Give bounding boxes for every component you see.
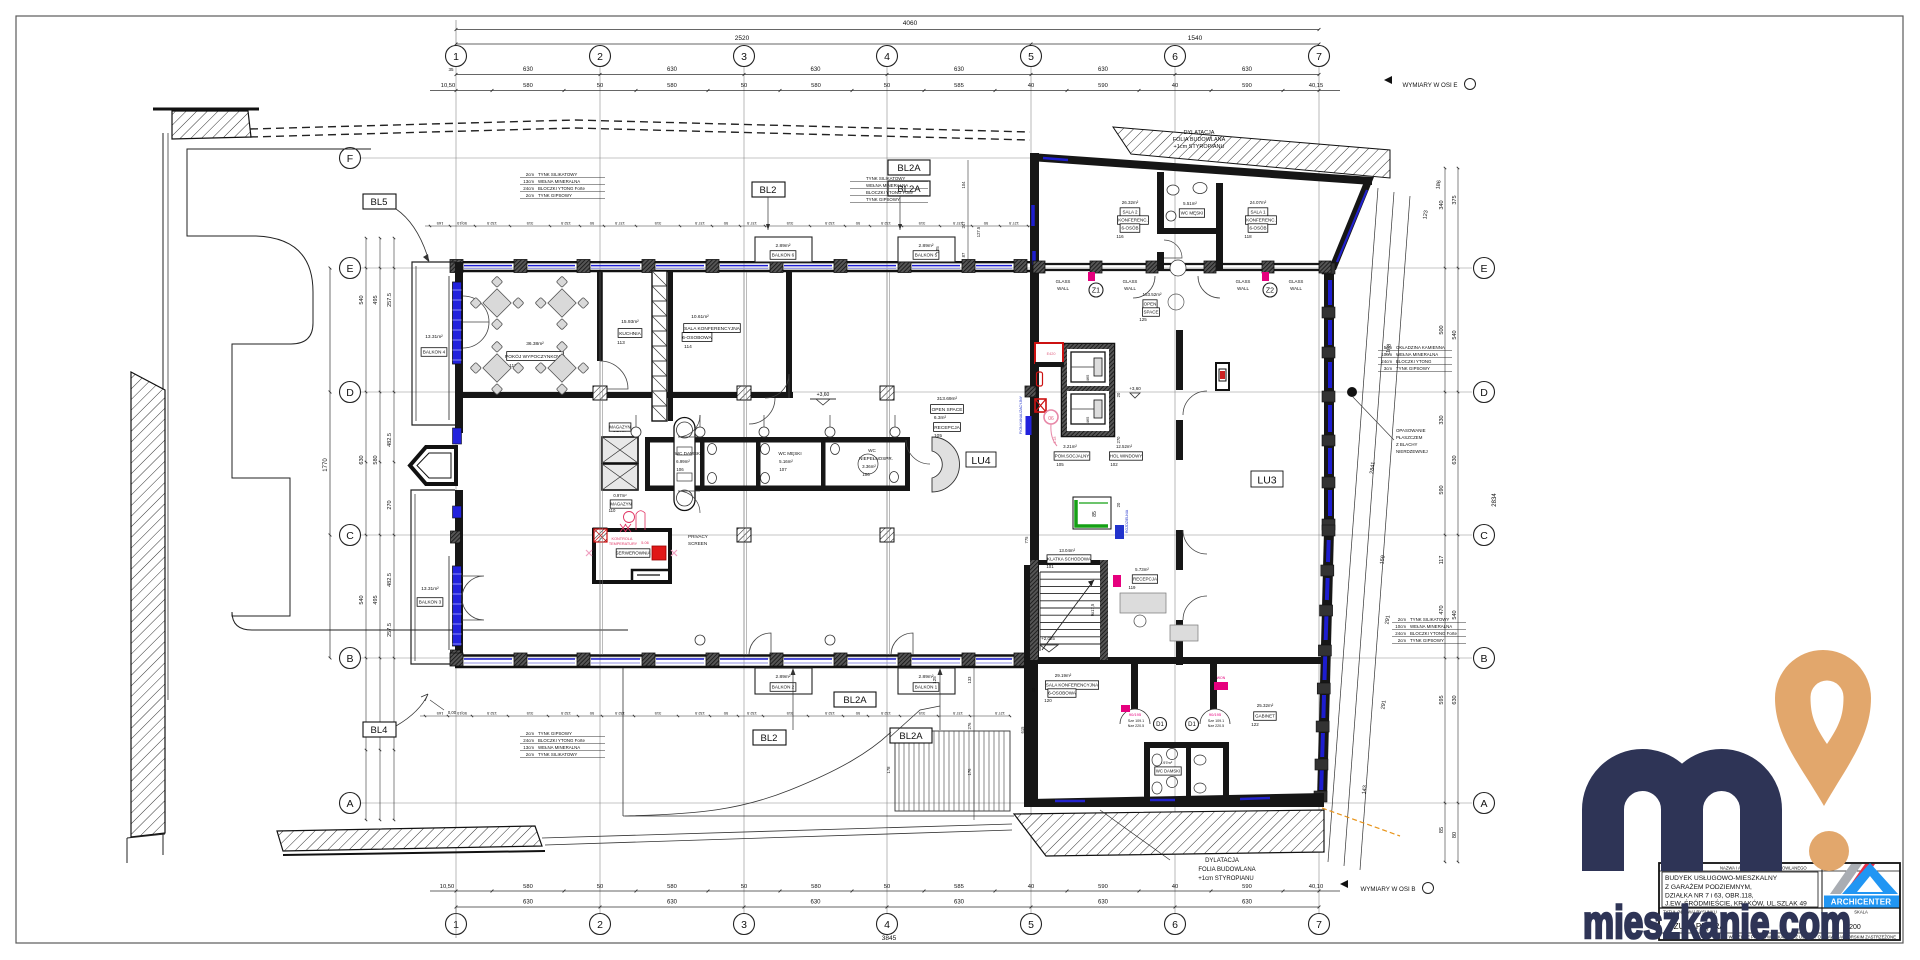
svg-text:2.89m²: 2.89m²	[776, 674, 791, 680]
svg-text:85: 85	[1439, 827, 1445, 833]
svg-text:495: 495	[373, 595, 379, 604]
svg-text:85: 85	[1092, 511, 1098, 517]
svg-text:+1cm STYROPIANU: +1cm STYROPIANU	[1198, 876, 1254, 882]
svg-text:WEŁNA MINERALNA: WEŁNA MINERALNA	[866, 183, 908, 188]
svg-text:470: 470	[1439, 605, 1445, 614]
svg-text:110: 110	[609, 508, 616, 513]
svg-text:KONTROLA: KONTROLA	[612, 537, 633, 541]
svg-text:132.5: 132.5	[560, 711, 571, 716]
svg-text:Z GARAŻEM PODZIEMNYM,: Z GARAŻEM PODZIEMNYM,	[1665, 882, 1752, 891]
svg-text:24cm: 24cm	[1395, 631, 1406, 636]
svg-text:5: 5	[1028, 51, 1034, 63]
svg-text:RECEPCJA: RECEPCJA	[1133, 577, 1157, 582]
svg-text:BALKON 4: BALKON 4	[423, 350, 446, 355]
svg-text:630: 630	[954, 67, 965, 73]
svg-text:125: 125	[1139, 317, 1147, 322]
svg-text:D: D	[346, 387, 354, 399]
svg-text:E420: E420	[1047, 352, 1056, 356]
svg-text:10,50: 10,50	[440, 884, 455, 890]
svg-text:40,15: 40,15	[1309, 83, 1324, 89]
svg-text:0.97m²: 0.97m²	[613, 493, 627, 498]
svg-text:BL2: BL2	[760, 185, 777, 196]
svg-text:630: 630	[523, 67, 534, 73]
svg-text:40: 40	[1031, 687, 1036, 692]
svg-text:117: 117	[1439, 556, 1445, 565]
svg-text:Nze 220.5: Nze 220.5	[1128, 724, 1144, 728]
svg-text:50: 50	[884, 884, 890, 890]
svg-text:WALL: WALL	[1124, 286, 1136, 291]
svg-text:TYNK SILIKATOWY: TYNK SILIKATOWY	[1410, 617, 1449, 622]
svg-text:132.5: 132.5	[824, 221, 835, 226]
svg-text:7: 7	[1316, 51, 1322, 63]
svg-text:50|10: 50|10	[456, 711, 467, 716]
svg-text:630: 630	[667, 900, 678, 906]
svg-text:+3,60: +3,60	[1129, 386, 1141, 391]
svg-text:590: 590	[1242, 83, 1252, 89]
svg-text:3: 3	[741, 51, 747, 63]
svg-text:mieszkanie.com: mieszkanie.com	[1583, 896, 1851, 948]
svg-text:ROZDZIELNIA: ROZDZIELNIA	[1125, 509, 1129, 533]
svg-text:2cm: 2cm	[526, 172, 535, 177]
svg-text:125: 125	[932, 676, 937, 684]
svg-text:585: 585	[954, 884, 964, 890]
svg-text:132.5: 132.5	[486, 221, 497, 226]
svg-text:6-OSOBOWA: 6-OSOBOWA	[1048, 691, 1076, 696]
svg-text:132.5: 132.5	[694, 711, 705, 716]
svg-text:13.31m²: 13.31m²	[425, 334, 443, 340]
svg-text:132.5: 132.5	[560, 221, 571, 226]
svg-text:WEŁNA MINERALNA: WEŁNA MINERALNA	[538, 745, 580, 750]
svg-text:313.69m²: 313.69m²	[937, 396, 958, 402]
svg-text:D: D	[1480, 387, 1488, 399]
svg-text:WC DAMSKI: WC DAMSKI	[1156, 769, 1180, 774]
svg-text:630: 630	[1242, 67, 1253, 73]
svg-text:615: 615	[1020, 726, 1025, 734]
svg-text:06: 06	[1048, 416, 1054, 422]
svg-text:POM.SOCJALNY: POM.SOCJALNY	[1055, 454, 1089, 459]
svg-text:Z1: Z1	[1092, 288, 1100, 295]
svg-text:2: 2	[597, 919, 603, 931]
svg-text:127.5: 127.5	[994, 711, 1005, 716]
svg-text:+2,025: +2,025	[1041, 636, 1055, 641]
svg-text:WYMIARY W OSI E: WYMIARY W OSI E	[1402, 82, 1457, 89]
svg-text:TYNK SILIKATOWY: TYNK SILIKATOWY	[866, 176, 905, 181]
svg-text:90/195: 90/195	[1209, 712, 1222, 717]
svg-text:4060: 4060	[903, 20, 918, 27]
svg-text:119: 119	[1129, 585, 1137, 590]
svg-text:5.16m²: 5.16m²	[779, 459, 793, 464]
svg-text:+3,60: +3,60	[817, 392, 830, 398]
svg-text:465: 465	[1085, 374, 1090, 381]
svg-text:4: 4	[884, 919, 890, 931]
svg-text:4: 4	[884, 51, 890, 63]
svg-text:13cm: 13cm	[523, 745, 534, 750]
svg-text:590: 590	[1242, 884, 1252, 890]
svg-text:LU3: LU3	[1257, 475, 1276, 487]
svg-text:Z BLACHY: Z BLACHY	[1396, 442, 1418, 447]
svg-text:WALL: WALL	[1057, 286, 1069, 291]
svg-text:102: 102	[1110, 462, 1118, 467]
svg-text:122: 122	[1251, 722, 1259, 727]
svg-text:340: 340	[1439, 200, 1445, 209]
svg-text:RECEPCJA: RECEPCJA	[934, 425, 960, 431]
svg-text:BL5: BL5	[371, 197, 388, 208]
svg-text:Sze 109.1: Sze 109.1	[1128, 719, 1144, 723]
svg-text:775: 775	[1024, 536, 1029, 544]
svg-text:25.32m²: 25.32m²	[1257, 703, 1274, 708]
svg-text:630: 630	[954, 900, 965, 906]
svg-text:106: 106	[676, 467, 684, 472]
svg-text:50: 50	[855, 221, 860, 226]
svg-text:630: 630	[1242, 900, 1253, 906]
svg-text:OKŁADZINA KAMIENNA: OKŁADZINA KAMIENNA	[1396, 345, 1445, 350]
svg-text:50|10: 50|10	[456, 221, 467, 226]
svg-text:Z2: Z2	[1266, 288, 1274, 295]
svg-text:165: 165	[436, 221, 443, 226]
svg-text:6.99m²: 6.99m²	[676, 459, 690, 464]
svg-text:500: 500	[1439, 325, 1445, 334]
svg-text:540: 540	[1452, 330, 1458, 339]
svg-text:630: 630	[1098, 67, 1109, 73]
svg-text:50: 50	[597, 83, 603, 89]
svg-text:2cm: 2cm	[526, 731, 535, 736]
svg-text:E: E	[1480, 263, 1487, 275]
svg-text:114: 114	[684, 344, 692, 350]
svg-text:178: 178	[886, 766, 891, 774]
svg-text:50: 50	[855, 711, 860, 716]
svg-text:24.07m²: 24.07m²	[1250, 200, 1267, 205]
svg-text:BL2A: BL2A	[843, 695, 867, 706]
svg-text:B: B	[1480, 653, 1487, 665]
svg-text:40: 40	[1172, 884, 1178, 890]
svg-text:12.52m²: 12.52m²	[1116, 444, 1133, 449]
svg-text:143: 143	[1361, 785, 1368, 795]
svg-text:330: 330	[1439, 415, 1445, 424]
svg-text:BL2A: BL2A	[897, 163, 921, 174]
svg-text:GLASS: GLASS	[1236, 279, 1251, 284]
svg-text:6-OSÓB: 6-OSÓB	[1249, 225, 1266, 231]
svg-text:20: 20	[1116, 502, 1121, 507]
svg-text:A: A	[1480, 798, 1487, 810]
svg-text:BALKON 6: BALKON 6	[772, 253, 795, 258]
svg-text:KONFERENC.: KONFERENC.	[1246, 218, 1276, 223]
svg-text:590: 590	[1439, 485, 1445, 494]
svg-text:2cm: 2cm	[1398, 617, 1407, 622]
svg-text:C: C	[1480, 530, 1488, 542]
svg-text:BALKON 1: BALKON 1	[915, 685, 938, 690]
svg-text:BALKON 3: BALKON 3	[419, 600, 442, 605]
svg-text:50: 50	[884, 83, 890, 89]
svg-text:10.61m²: 10.61m²	[691, 314, 709, 320]
svg-text:D1: D1	[1188, 722, 1196, 728]
svg-text:13cm: 13cm	[523, 179, 534, 184]
svg-text:FOLIA BUDOWLANA: FOLIA BUDOWLANA	[1198, 867, 1255, 873]
svg-text:1: 1	[453, 51, 459, 63]
svg-text:3845: 3845	[882, 935, 897, 942]
svg-text:2.89m²: 2.89m²	[919, 243, 934, 249]
svg-text:630: 630	[359, 455, 365, 464]
svg-text:176: 176	[967, 768, 972, 776]
svg-text:5.73m²: 5.73m²	[1135, 567, 1149, 572]
svg-text:40: 40	[1028, 83, 1034, 89]
svg-text:TYNK GIPSOWY: TYNK GIPSOWY	[538, 193, 572, 198]
svg-text:1540: 1540	[1188, 35, 1203, 42]
svg-text:580: 580	[523, 884, 533, 890]
svg-text:137.5: 137.5	[746, 221, 757, 226]
svg-text:6.3m²: 6.3m²	[934, 415, 947, 421]
svg-text:132.5: 132.5	[746, 711, 757, 716]
svg-text:2cm: 2cm	[526, 193, 535, 198]
svg-text:123: 123	[1422, 210, 1429, 220]
svg-text:50: 50	[723, 711, 728, 716]
svg-text:PION KANALIZACYJNY: PION KANALIZACYJNY	[1019, 395, 1023, 434]
svg-text:50: 50	[589, 221, 594, 226]
svg-text:580: 580	[811, 884, 821, 890]
svg-text:WEŁNA MINERALNA: WEŁNA MINERALNA	[1396, 352, 1438, 357]
svg-text:SALA 1: SALA 1	[1250, 210, 1266, 215]
svg-text:BL4: BL4	[371, 725, 388, 736]
svg-text:24cm: 24cm	[1381, 359, 1392, 364]
svg-text:24cm: 24cm	[523, 186, 534, 191]
svg-text:WYMIARY W OSI B: WYMIARY W OSI B	[1360, 886, 1415, 893]
svg-text:159: 159	[1379, 555, 1386, 565]
svg-text:465: 465	[1085, 416, 1090, 423]
svg-text:WEŁNA MINERALNA: WEŁNA MINERALNA	[1410, 624, 1452, 629]
svg-text:10cm: 10cm	[1381, 352, 1392, 357]
svg-text:F: F	[347, 153, 353, 165]
svg-text:315: 315	[918, 221, 925, 226]
svg-text:OPEN: OPEN	[1144, 302, 1157, 307]
svg-text:TYNK GIPSOWY: TYNK GIPSOWY	[1396, 366, 1430, 371]
svg-text:87: 87	[961, 252, 966, 257]
svg-text:TYNK SILIKATOWY: TYNK SILIKATOWY	[538, 752, 577, 757]
svg-text:BLOCZKI YTONG Forte: BLOCZKI YTONG Forte	[866, 190, 913, 195]
svg-text:6: 6	[1172, 51, 1178, 63]
svg-text:SERWEROWNIA: SERWEROWNIA	[616, 551, 651, 556]
svg-text:26.32m²: 26.32m²	[1122, 200, 1139, 205]
svg-text:WALL: WALL	[1290, 286, 1302, 291]
svg-text:40: 40	[1172, 83, 1178, 89]
svg-text:NIERDZEWNEJ: NIERDZEWNEJ	[1396, 449, 1428, 454]
svg-text:1770: 1770	[323, 458, 329, 472]
svg-text:120: 120	[1044, 698, 1052, 703]
svg-text:137.5: 137.5	[694, 221, 705, 226]
svg-text:6: 6	[1172, 919, 1178, 931]
svg-text:E: E	[346, 263, 353, 275]
svg-text:50: 50	[589, 711, 594, 716]
svg-text:40: 40	[1028, 884, 1034, 890]
svg-text:80: 80	[1452, 832, 1458, 838]
svg-text:0,00: 0,00	[448, 710, 457, 715]
svg-text:495: 495	[373, 295, 379, 304]
svg-text:HOL WINDOWY: HOL WINDOWY	[1110, 454, 1142, 459]
svg-text:24cm: 24cm	[523, 738, 534, 743]
svg-text:540: 540	[359, 595, 365, 604]
svg-text:1-18: 1-18	[1053, 436, 1057, 443]
svg-text:630: 630	[667, 67, 678, 73]
svg-text:137.5: 137.5	[952, 711, 963, 716]
svg-text:2834: 2834	[1492, 493, 1498, 507]
svg-text:PŁASZCZEM: PŁASZCZEM	[1396, 435, 1423, 440]
svg-text:90/195: 90/195	[1129, 712, 1142, 717]
svg-text:WC: WC	[868, 448, 876, 453]
svg-text:315: 315	[526, 221, 533, 226]
svg-text:132.5: 132.5	[486, 711, 497, 716]
svg-text:15.93m²: 15.93m²	[621, 319, 639, 325]
svg-text:50: 50	[723, 221, 728, 226]
svg-text:3cm: 3cm	[1384, 366, 1393, 371]
svg-text:13.31m²: 13.31m²	[421, 586, 439, 592]
svg-text:2520: 2520	[735, 35, 750, 42]
svg-text:50: 50	[741, 884, 747, 890]
svg-text:29.19m²: 29.19m²	[1055, 673, 1072, 678]
svg-text:580: 580	[667, 83, 677, 89]
svg-text:DYLATACJA: DYLATACJA	[1184, 130, 1215, 136]
svg-text:GLASS: GLASS	[1056, 279, 1071, 284]
svg-text:133: 133	[967, 676, 972, 684]
svg-text:C: C	[346, 530, 354, 542]
svg-text:107: 107	[779, 467, 787, 472]
svg-text:WALL: WALL	[1237, 286, 1249, 291]
svg-text:315: 315	[526, 711, 533, 716]
svg-text:BLOCZKI YTONG Forte: BLOCZKI YTONG Forte	[538, 186, 585, 191]
svg-text:580: 580	[811, 83, 821, 89]
svg-text:SKALA: SKALA	[1854, 910, 1868, 915]
svg-text:630: 630	[810, 67, 821, 73]
svg-text:7: 7	[1316, 919, 1322, 931]
svg-text:BL2: BL2	[761, 733, 778, 744]
svg-text:Nze 220.5: Nze 220.5	[1208, 724, 1224, 728]
svg-text:MAGAZYN: MAGAZYN	[609, 425, 630, 430]
svg-text:5cm: 5cm	[1384, 345, 1393, 350]
svg-text:315: 315	[786, 221, 793, 226]
svg-text:KONFERENC.: KONFERENC.	[1118, 218, 1148, 223]
svg-text:132.5: 132.5	[824, 711, 835, 716]
svg-text:125: 125	[935, 246, 940, 254]
svg-text:186: 186	[1435, 180, 1442, 190]
svg-text:590: 590	[1098, 884, 1108, 890]
svg-text:WEŁNA MINERALNA: WEŁNA MINERALNA	[538, 179, 580, 184]
svg-text:40,10: 40,10	[1309, 884, 1324, 890]
svg-text:GABINET: GABINET	[1255, 714, 1275, 719]
svg-text:D1: D1	[1156, 722, 1164, 728]
svg-text:257.5: 257.5	[387, 293, 393, 307]
svg-text:FOLIA BUDOWLANA: FOLIA BUDOWLANA	[1173, 137, 1226, 143]
svg-text:105: 105	[1056, 462, 1064, 467]
svg-text:20: 20	[1116, 392, 1121, 397]
svg-text:SPACE: SPACE	[1144, 310, 1159, 315]
svg-text:2.89m²: 2.89m²	[776, 243, 791, 249]
svg-text:482.5: 482.5	[387, 433, 393, 447]
svg-text:132.5: 132.5	[880, 221, 891, 226]
svg-text:113: 113	[617, 340, 625, 346]
svg-text:595: 595	[1439, 695, 1445, 704]
svg-text:127.5: 127.5	[1008, 221, 1019, 226]
svg-text:630: 630	[1452, 695, 1458, 704]
svg-text:50: 50	[983, 221, 988, 226]
svg-text:WC MĘSKI: WC MĘSKI	[1181, 211, 1204, 216]
svg-text:5.51m²: 5.51m²	[1183, 201, 1197, 206]
svg-text:WON: WON	[1217, 676, 1226, 680]
svg-text:101: 101	[1046, 564, 1054, 569]
svg-text:GLASS: GLASS	[1289, 279, 1304, 284]
svg-text:118: 118	[1244, 234, 1252, 239]
svg-text:580: 580	[667, 884, 677, 890]
svg-text:BLOCZKI YTONG: BLOCZKI YTONG	[1396, 359, 1432, 364]
svg-text:13.04m²: 13.04m²	[1059, 548, 1076, 553]
svg-text:BALKON 2: BALKON 2	[772, 685, 795, 690]
svg-text:375: 375	[1452, 195, 1458, 204]
svg-text:630: 630	[810, 900, 821, 906]
svg-text:9x17,5: 9x17,5	[1090, 603, 1095, 616]
svg-text:BLOCZKI YTONG Forte: BLOCZKI YTONG Forte	[538, 738, 585, 743]
svg-text:KLATKA SCHODOWA: KLATKA SCHODOWA	[1047, 557, 1091, 562]
svg-text:TYNK GIPSOWY: TYNK GIPSOWY	[1410, 638, 1444, 643]
svg-text:SALA KONFERENCYJNA: SALA KONFERENCYJNA	[1046, 683, 1098, 688]
svg-text:580: 580	[373, 455, 379, 464]
svg-text:540: 540	[359, 295, 365, 304]
svg-text:276: 276	[967, 722, 972, 730]
svg-text:6-OSOBOWA: 6-OSOBOWA	[682, 335, 712, 341]
svg-text:580: 580	[523, 83, 533, 89]
svg-text:LU4: LU4	[971, 455, 990, 467]
svg-text:630: 630	[1452, 455, 1458, 464]
svg-text:WC DAMSKI: WC DAMSKI	[675, 451, 702, 456]
svg-text:WC MĘSKI: WC MĘSKI	[778, 451, 801, 456]
svg-text:TEMPERATURY: TEMPERATURY	[609, 542, 638, 546]
svg-text:132.5: 132.5	[614, 711, 625, 716]
svg-text:590: 590	[1098, 83, 1108, 89]
svg-text:6-OSÓB: 6-OSÓB	[1121, 225, 1138, 231]
svg-text:315: 315	[654, 711, 661, 716]
svg-text:SALA 2: SALA 2	[1122, 210, 1138, 215]
svg-text:2cm: 2cm	[1398, 638, 1407, 643]
svg-text:291: 291	[1380, 700, 1387, 710]
svg-text:BLOCZKI YTONG Forte: BLOCZKI YTONG Forte	[1410, 631, 1457, 636]
svg-text:BUDYEK USŁUGOWO-MIESZKALNY: BUDYEK USŁUGOWO-MIESZKALNY	[1665, 875, 1778, 882]
svg-text:5: 5	[1028, 919, 1034, 931]
svg-text:PRIVACY: PRIVACY	[688, 534, 708, 539]
svg-text:+1cm STYROPIANU: +1cm STYROPIANU	[1174, 144, 1225, 150]
svg-text:315: 315	[786, 711, 793, 716]
svg-text:270: 270	[1116, 436, 1121, 444]
svg-text:3.21m²: 3.21m²	[1063, 444, 1077, 449]
svg-text:50: 50	[597, 884, 603, 890]
svg-text:3.36m²: 3.36m²	[862, 464, 876, 469]
svg-text:630: 630	[1098, 900, 1109, 906]
svg-text:OPASOWANIE: OPASOWANIE	[1396, 428, 1426, 433]
svg-text:KUCHNIA: KUCHNIA	[619, 331, 641, 337]
svg-text:247: 247	[961, 221, 966, 229]
svg-text:DYLATACJA: DYLATACJA	[1205, 858, 1239, 864]
svg-text:291: 291	[1384, 615, 1391, 625]
svg-text:MAGAZYN: MAGAZYN	[610, 502, 631, 507]
svg-text:5.06: 5.06	[641, 541, 648, 545]
svg-text:116: 116	[1116, 234, 1124, 239]
svg-text:OPEN SPACE: OPEN SPACE	[932, 407, 963, 413]
svg-text:10cm: 10cm	[1395, 624, 1406, 629]
svg-text:540: 540	[1452, 610, 1458, 619]
svg-text:BL2A: BL2A	[899, 731, 923, 742]
svg-text:585: 585	[954, 83, 964, 89]
svg-text:127.5: 127.5	[976, 226, 981, 237]
svg-text:270: 270	[387, 500, 393, 509]
svg-text:132.5: 132.5	[880, 711, 891, 716]
svg-text:165: 165	[436, 711, 443, 716]
svg-text:3: 3	[741, 919, 747, 931]
svg-text:10,50: 10,50	[441, 83, 456, 89]
svg-text:SCREEN: SCREEN	[688, 541, 707, 546]
